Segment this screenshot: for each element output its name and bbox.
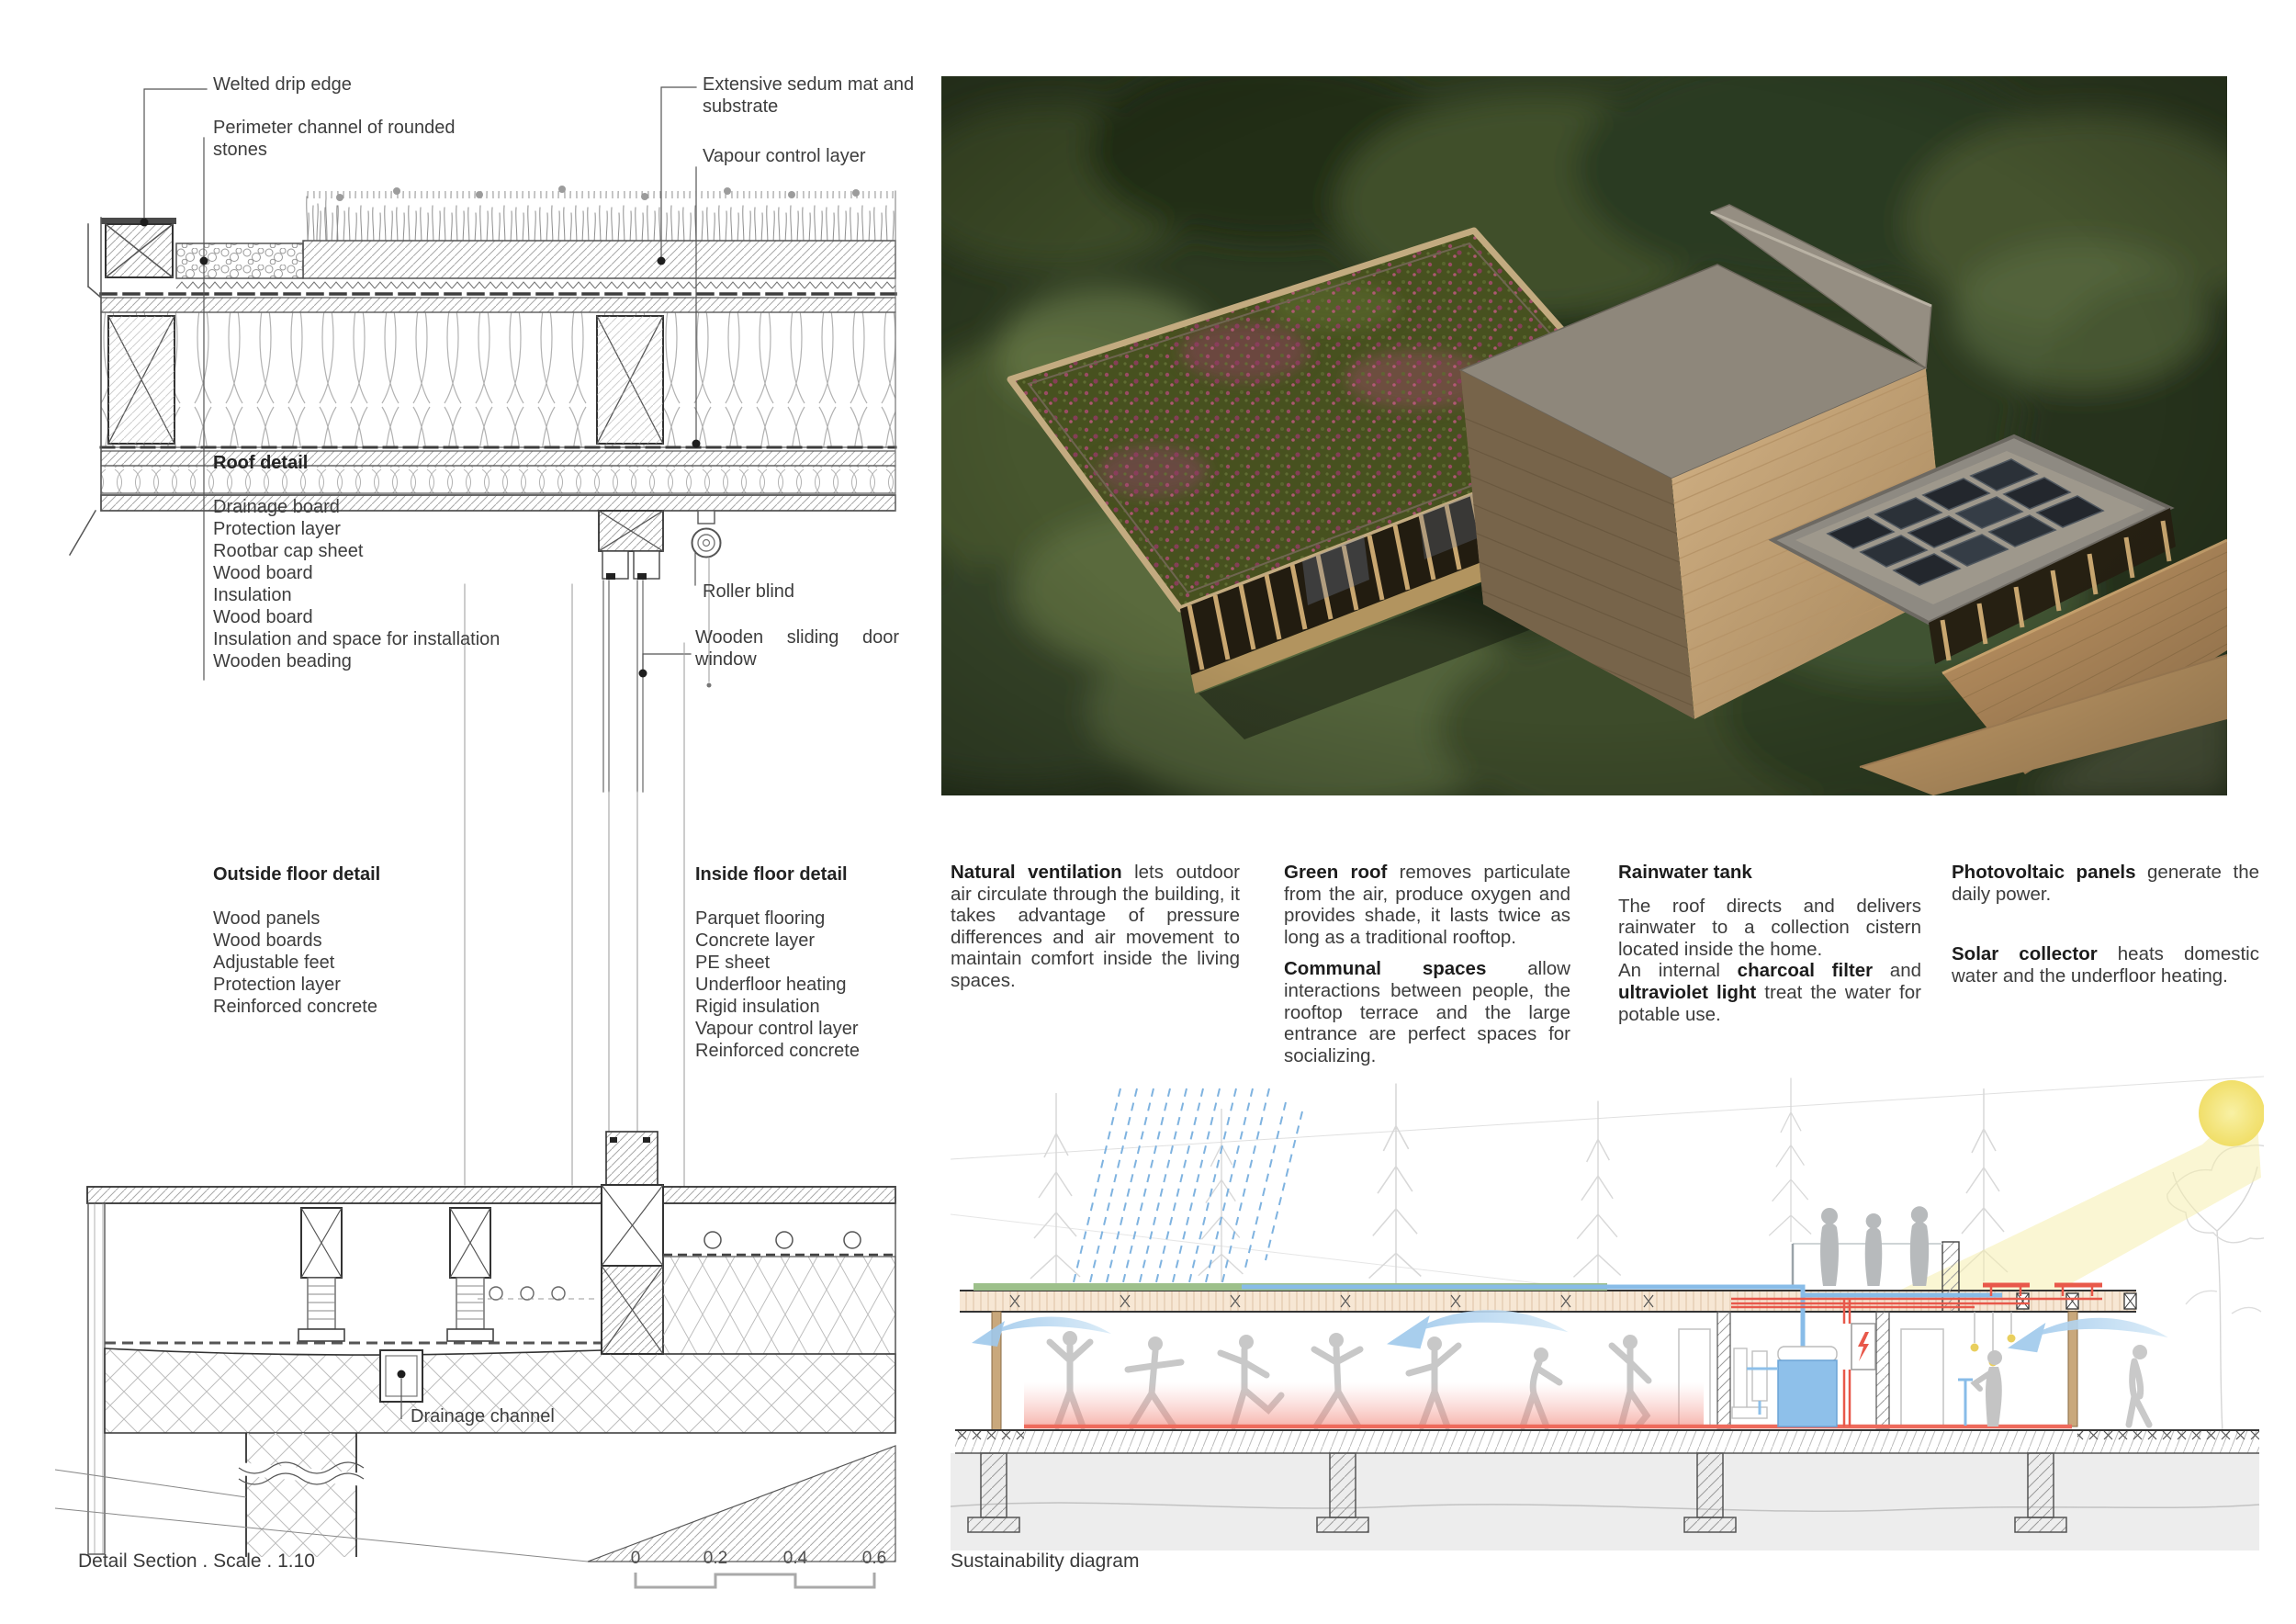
- floor-top-boards: [87, 1187, 895, 1203]
- wood-board-upper: [101, 298, 895, 312]
- layer-item: Rootbar cap sheet: [213, 540, 535, 562]
- floor-detail-drawing: [55, 1132, 895, 1562]
- layer-item: Vapour control layer: [695, 1018, 934, 1040]
- layer-item: PE sheet: [695, 952, 934, 974]
- column-photovoltaic: Photovoltaic panels generate the daily p…: [1952, 862, 2259, 997]
- scale-tick: 0.2: [703, 1549, 727, 1569]
- layer-item: Reinforced concrete: [695, 1040, 934, 1062]
- building-render-photo: [941, 76, 2227, 795]
- scale-tick: 0.4: [783, 1549, 807, 1569]
- underfloor-heating-pipes: [704, 1232, 861, 1248]
- inside-floor-title: Inside floor detail: [695, 863, 934, 885]
- sustainability-diagram: [951, 1056, 2264, 1557]
- cavity-pipes: [490, 1287, 565, 1300]
- bold-lead: Photovoltaic panels: [1952, 862, 2136, 883]
- drip-edge-cap: [101, 218, 176, 224]
- sedum-vegetation: [303, 186, 895, 241]
- column-rainwater-tank: Rainwater tank The roof directs and deli…: [1618, 862, 1921, 1035]
- layer-item: Wood panels: [213, 908, 525, 930]
- bold-lead: Green roof: [1284, 862, 1387, 883]
- layer-item: Drainage board: [213, 496, 535, 518]
- electric-panel: [1851, 1324, 1875, 1370]
- roof-detail-title: Roof detail: [213, 452, 535, 474]
- roof-left-profile: [70, 218, 101, 555]
- column-natural-ventilation: Natural ventilation lets outdoor air cir…: [951, 862, 1240, 1002]
- adjustable-foot: [447, 1208, 493, 1341]
- heating-glow: [1024, 1382, 1704, 1427]
- concrete-pier: [239, 1433, 364, 1557]
- adjustable-foot: [298, 1208, 344, 1341]
- label-drainage-channel: Drainage channel: [411, 1405, 640, 1427]
- layer-item: Rigid insulation: [695, 996, 934, 1018]
- outside-floor-detail-list: Outside floor detail Wood panels Wood bo…: [213, 863, 525, 1018]
- roof-detail-list: Roof detail Drainage board Protection la…: [213, 452, 535, 672]
- layer-item: Underfloor heating: [695, 974, 934, 996]
- substrate-layer: [303, 241, 895, 278]
- layer-item: Parquet flooring: [695, 908, 934, 930]
- bold-lead: Communal spaces: [1284, 958, 1486, 979]
- presentation-board: Welted drip edge Perimeter channel of ro…: [0, 0, 2296, 1624]
- window-head: [599, 511, 663, 580]
- window-mullions: [603, 581, 643, 792]
- outside-floor-title: Outside floor detail: [213, 863, 525, 885]
- layer-item: Insulation and space for installation: [213, 628, 535, 650]
- scale-tick: 0.6: [862, 1549, 886, 1569]
- detail-section-caption: Detail Section . Scale . 1.10: [78, 1551, 315, 1573]
- layer-item: Wooden beading: [213, 650, 535, 672]
- label-vapour-control: Vapour control layer: [703, 145, 923, 167]
- interior-person: [1975, 1350, 2002, 1427]
- floor-and-foundation: [951, 1430, 2259, 1551]
- scale-tick: 0: [631, 1549, 641, 1569]
- sun-icon: [2199, 1080, 2264, 1146]
- layer-item: Wood board: [213, 562, 535, 584]
- label-sliding-window: Wooden sliding door window: [695, 626, 899, 671]
- layer-item: Insulation: [213, 584, 535, 606]
- window-frame-bottom: [602, 1132, 663, 1354]
- rainwater-tank-heading: Rainwater tank: [1618, 862, 1921, 884]
- left-cladding: [88, 1203, 105, 1554]
- roof-joist: [597, 316, 663, 444]
- column-green-roof: Green roof removes particulate from the …: [1284, 862, 1570, 1077]
- rain-lines: [1073, 1088, 1302, 1286]
- layer-item: Wood boards: [213, 930, 525, 952]
- roof-joist: [108, 316, 174, 444]
- scale-bar: [636, 1573, 874, 1587]
- label-welted-drip-edge: Welted drip edge: [213, 73, 424, 96]
- layer-item: Adjustable feet: [213, 952, 525, 974]
- drip-edge-timber: [106, 224, 173, 277]
- insulation-layer: [101, 312, 895, 447]
- layer-item: Wood board: [213, 606, 535, 628]
- layer-item: Protection layer: [213, 974, 525, 996]
- pebble-channel: [176, 243, 303, 278]
- cistern-tank: [1778, 1360, 1837, 1427]
- label-perimeter-channel: Perimeter channel of rounded stones: [213, 117, 470, 161]
- terrace-people: [1820, 1206, 1929, 1286]
- layer-item: Concrete layer: [695, 930, 934, 952]
- bold-lead: Natural ventilation: [951, 862, 1122, 883]
- inside-floor-detail-list: Inside floor detail Parquet flooring Con…: [695, 863, 934, 1062]
- bold-lead: Solar collector: [1952, 943, 2098, 964]
- walking-person: [2129, 1345, 2149, 1425]
- ground-wedge: [588, 1446, 895, 1562]
- detail-section-drawing: [0, 0, 932, 1624]
- label-sedum-mat: Extensive sedum mat and substrate: [703, 73, 918, 118]
- protection-layer-line: [176, 281, 895, 289]
- label-roller-blind: Roller blind: [703, 581, 886, 603]
- layer-item: Protection layer: [213, 518, 535, 540]
- rigid-insulation: [663, 1257, 895, 1354]
- sustainability-caption: Sustainability diagram: [951, 1551, 1139, 1573]
- layer-item: Reinforced concrete: [213, 996, 525, 1018]
